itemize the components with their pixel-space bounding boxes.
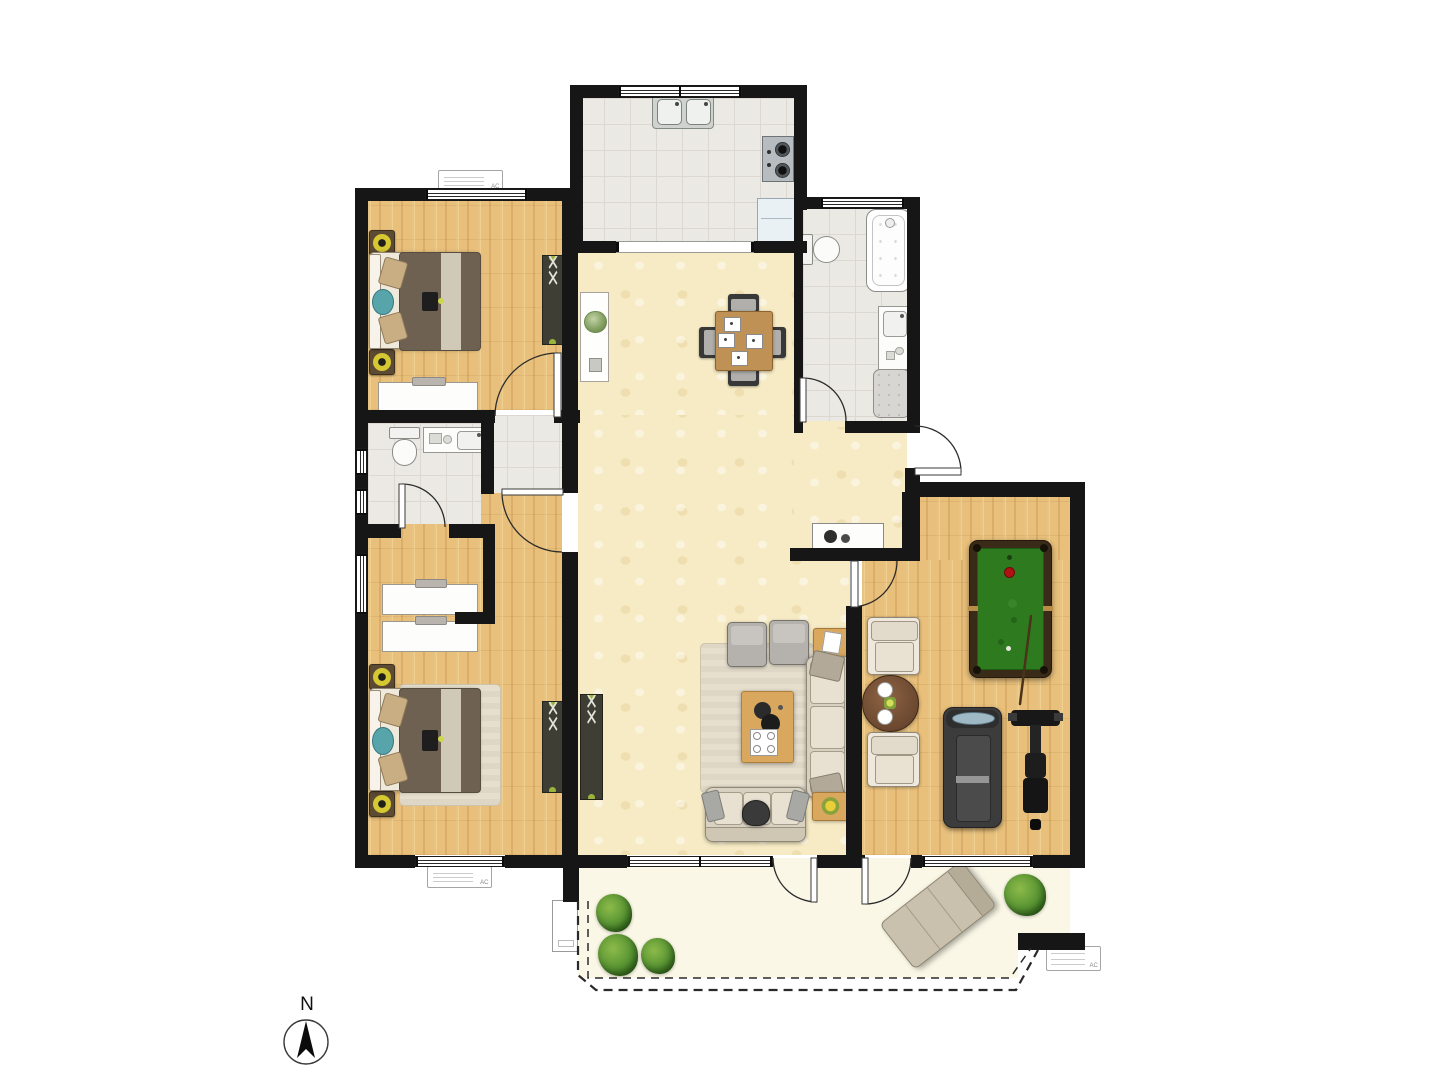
wt [821, 198, 823, 208]
armchair [867, 617, 920, 675]
wl [360, 489, 361, 515]
pool-table [969, 540, 1052, 678]
balcony-plant [598, 934, 638, 976]
citem [589, 358, 603, 372]
acl2 [433, 877, 473, 878]
wall-segment [505, 855, 563, 868]
shoe-cabinet [812, 523, 884, 551]
pk [1040, 544, 1048, 552]
pm [731, 351, 748, 366]
hall-wardrobe: ✕✕ [580, 694, 603, 800]
desk-master [382, 584, 478, 615]
ctd [753, 745, 761, 753]
window [415, 856, 505, 867]
cus [731, 299, 756, 311]
pmid [968, 606, 978, 611]
dtab [415, 579, 447, 588]
cup [877, 682, 893, 698]
pk [973, 544, 981, 552]
cup [877, 709, 893, 725]
wall-segment [794, 85, 807, 210]
wx: ✕ [543, 713, 563, 738]
sc2 [841, 534, 850, 543]
bks [1030, 725, 1042, 754]
wt [1030, 856, 1032, 867]
runner [441, 689, 460, 792]
wgd [588, 794, 595, 800]
wall-segment [355, 855, 415, 868]
wgd [549, 787, 556, 793]
acs [875, 755, 915, 784]
svc [810, 706, 845, 749]
duvet [399, 688, 481, 793]
ccd [778, 705, 783, 710]
acl3 [444, 185, 484, 186]
exercise-bike [1011, 706, 1060, 830]
compass-circle [284, 1020, 328, 1064]
window [356, 488, 367, 516]
pm [724, 317, 741, 332]
desk-master [382, 621, 478, 652]
tea-table [862, 675, 919, 732]
wall-segment [355, 410, 495, 423]
wall-segment [790, 548, 915, 561]
wl [363, 449, 364, 475]
wall-segment [1018, 933, 1085, 950]
ctd [767, 745, 775, 753]
sflower [821, 796, 841, 816]
sdot [675, 102, 679, 106]
bkw2 [1054, 713, 1063, 720]
acl2 [444, 181, 484, 182]
bed-guest [369, 252, 479, 349]
pm [746, 334, 763, 349]
wall-segment [902, 492, 920, 561]
tealc [372, 289, 394, 315]
pmd [752, 339, 755, 342]
toilet-main [802, 234, 840, 263]
lampring [373, 234, 391, 252]
cooktop [762, 136, 794, 182]
dremote [422, 730, 438, 751]
door-rec-room-leaf [851, 561, 858, 607]
wt [356, 473, 367, 475]
wt [356, 554, 367, 556]
bkt [1025, 753, 1046, 778]
wall-segment [754, 241, 807, 253]
bkh [1011, 710, 1060, 726]
refrigerator [757, 198, 796, 242]
wall-segment [449, 524, 495, 538]
actxt: AC [480, 880, 488, 886]
wt [923, 856, 925, 867]
actxt: AC [1090, 963, 1098, 969]
bkb [1023, 778, 1048, 813]
window [820, 198, 905, 208]
acs [875, 642, 915, 672]
tmc [952, 712, 995, 725]
armchair [867, 732, 920, 787]
shower-tray [873, 369, 910, 418]
window [356, 553, 367, 615]
otop [773, 624, 805, 643]
sbasin [686, 99, 711, 125]
wl [360, 554, 361, 614]
wt [770, 856, 772, 867]
vitem [443, 435, 453, 444]
vitem [429, 433, 442, 445]
nightstand-lamp [369, 791, 395, 817]
wl [426, 193, 527, 194]
balcony-plant [1004, 874, 1046, 916]
acl1 [433, 873, 473, 874]
pmid [1043, 606, 1053, 611]
vitem [886, 351, 895, 360]
wt [699, 856, 701, 867]
otop [731, 626, 763, 645]
pk [973, 666, 981, 674]
pmd [730, 322, 733, 325]
acb [871, 621, 918, 641]
footstool [742, 800, 770, 826]
wl [821, 201, 904, 202]
wl [363, 489, 364, 515]
fline [761, 218, 792, 219]
door-entry-leaf [915, 468, 961, 475]
dremote [422, 292, 438, 311]
pb [1007, 555, 1012, 560]
wall-segment [455, 612, 495, 624]
wx: ✕ [581, 706, 602, 731]
acl1 [1051, 953, 1085, 954]
pb [998, 639, 1004, 645]
wgd [549, 339, 556, 345]
wall-segment [563, 855, 627, 868]
pb [1004, 567, 1015, 578]
hall-console [580, 292, 609, 382]
wall-segment [1033, 855, 1085, 868]
ctd [767, 732, 775, 740]
treadmill [943, 707, 1002, 828]
wt [628, 856, 630, 867]
wt [751, 242, 754, 252]
wall-segment [906, 482, 1085, 497]
bkw1 [1008, 713, 1017, 720]
wl [363, 554, 364, 614]
window [618, 86, 742, 97]
pmd [737, 356, 740, 359]
nightstand-lamp [369, 349, 395, 375]
vitem [895, 347, 904, 355]
pk [1040, 666, 1048, 674]
wt [356, 513, 367, 515]
wt [426, 189, 428, 200]
utility-unit [552, 900, 578, 952]
acb [871, 736, 918, 755]
wall-segment [846, 606, 862, 858]
lampring [373, 668, 391, 686]
pmd [724, 338, 727, 341]
wl [923, 863, 1032, 864]
wt [619, 86, 621, 97]
lseg [905, 905, 940, 950]
window [425, 189, 528, 200]
ctd [753, 732, 761, 740]
wl [426, 196, 527, 197]
burn [775, 163, 790, 178]
wt [356, 449, 367, 451]
acl3 [1051, 964, 1085, 965]
window [922, 856, 1033, 867]
bathroom-vanity [878, 306, 910, 370]
dtab [415, 616, 447, 625]
toilet-small [389, 427, 418, 466]
wall-segment [905, 468, 920, 496]
cdot [767, 163, 771, 167]
wt [679, 86, 681, 97]
tk [389, 427, 420, 439]
burn [775, 142, 790, 157]
wall-segment [481, 410, 494, 494]
wt [356, 489, 367, 491]
wx: ✕ [543, 267, 563, 292]
acl2 [1051, 959, 1085, 960]
sbasin [657, 99, 682, 125]
lseg [927, 887, 962, 932]
leafc [884, 697, 896, 709]
wall-segment [907, 197, 920, 433]
wt [356, 612, 367, 614]
wall-segment [817, 855, 865, 868]
duvet [399, 252, 481, 351]
acl3 [433, 881, 473, 882]
plm [558, 940, 574, 947]
sbook [822, 631, 843, 654]
cplant [584, 311, 607, 334]
kitchen-pass-opening [616, 241, 754, 253]
wall-segment [845, 421, 920, 433]
wl [360, 449, 361, 475]
wl [416, 863, 504, 864]
ottoman [769, 620, 809, 665]
wardrobe-guest: ✕✕ [542, 255, 564, 345]
ctray [750, 729, 778, 756]
bkw [1030, 819, 1042, 830]
wt [902, 198, 904, 208]
wt [739, 86, 741, 97]
wt [616, 242, 619, 252]
pb [1011, 617, 1017, 623]
floor-plan: N ✕✕✕✕✕✕ ACACAC [0, 0, 1440, 1080]
wt [416, 856, 418, 867]
wall-segment [911, 855, 922, 868]
wall-segment [562, 188, 578, 493]
wt [502, 856, 504, 867]
nightstand-lamp [369, 664, 395, 690]
wl [923, 860, 1032, 861]
sc1 [824, 530, 837, 543]
wall-segment [562, 552, 578, 858]
runner [441, 253, 460, 350]
door-entry-swing-arc [915, 426, 961, 472]
wall-segment [554, 410, 580, 423]
compass-north-arrow [297, 1021, 315, 1058]
coffee-table [741, 691, 794, 763]
tealc [372, 727, 394, 755]
acl1 [444, 177, 484, 178]
window [356, 448, 367, 476]
sdot [704, 102, 708, 106]
cdot [767, 150, 771, 154]
dgdot [438, 298, 444, 304]
desk-guest [378, 382, 478, 413]
kitchen-double-sink [652, 94, 714, 129]
small-bath-vanity [423, 427, 488, 453]
wt [525, 189, 527, 200]
bed-master [369, 688, 479, 791]
bathtub [866, 209, 911, 292]
compass-north-label: N [295, 994, 319, 1016]
ottoman [727, 622, 767, 667]
dining-table [715, 311, 773, 371]
wl [821, 204, 904, 205]
lampring [373, 795, 391, 813]
side-table [812, 792, 849, 821]
ac-unit: AC [427, 866, 492, 888]
balcony-plant [596, 894, 632, 932]
pm [718, 333, 735, 348]
shback [706, 827, 805, 841]
bw [392, 439, 417, 465]
dtab [412, 377, 445, 386]
wall-segment [1070, 482, 1085, 868]
wl [416, 860, 504, 861]
bw [813, 236, 840, 262]
wall-segment [355, 524, 401, 538]
wardrobe-master: ✕✕ [542, 701, 564, 793]
tms [956, 776, 989, 783]
window [627, 856, 773, 867]
balcony-plant [641, 938, 675, 974]
lampring [373, 353, 391, 371]
